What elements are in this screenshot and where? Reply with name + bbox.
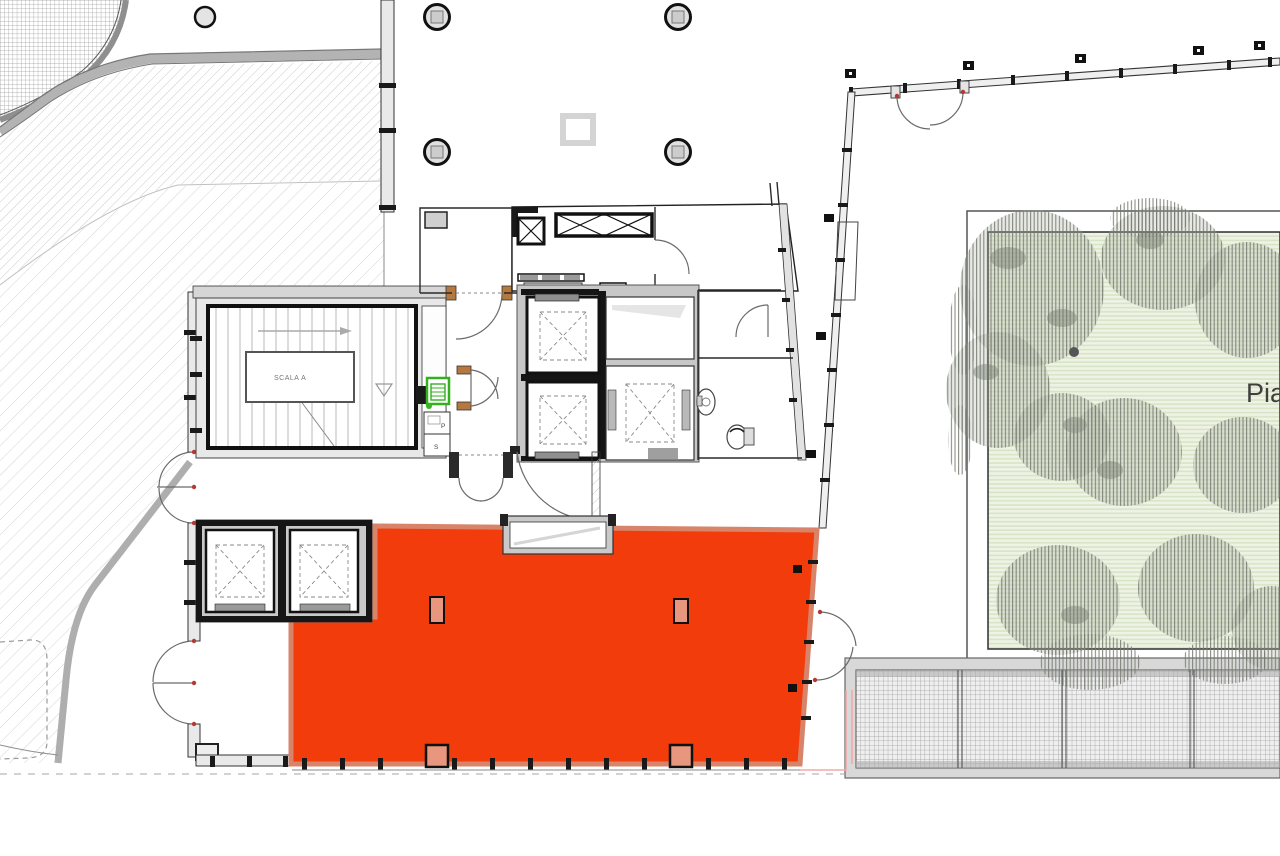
elevator-shaft (290, 530, 358, 612)
unit-column (674, 599, 688, 623)
south-wall-west-segment (196, 755, 292, 767)
svg-text:S: S (434, 444, 439, 451)
tree-canopy (1183, 636, 1267, 684)
north-wall (379, 0, 396, 212)
east-marker (793, 565, 802, 573)
elevator-shaft (527, 294, 599, 373)
tree-canopy (1110, 198, 1190, 238)
duct-box (518, 218, 544, 244)
column-marker (195, 7, 215, 27)
tree-canopy (949, 285, 977, 375)
east-marker (788, 684, 797, 692)
tree-canopy (1066, 398, 1182, 506)
elevator-shaft-large (606, 366, 694, 460)
pink-outline (800, 690, 852, 770)
unit-pier (670, 745, 692, 767)
unit-pier (426, 745, 448, 767)
elevator-shaft (206, 530, 274, 612)
east-wall-band (779, 204, 806, 460)
lower-elevator-block (196, 520, 372, 622)
room-p: P (424, 412, 450, 434)
stairwell: SCALA A (190, 286, 447, 458)
toilet (727, 425, 754, 449)
floor-plan-canvas: Pia (0, 0, 1280, 856)
column-marker (666, 140, 691, 165)
unit-column (430, 597, 444, 623)
tree-canopy (1040, 634, 1140, 690)
ghost-column (563, 116, 593, 143)
stairwell-label: SCALA A (274, 375, 306, 382)
column-marker (425, 140, 450, 165)
west-door-pair-lower (153, 639, 196, 726)
elevator-bank (517, 285, 699, 462)
tree-trunk-dot (1069, 347, 1079, 357)
machine-room (606, 297, 694, 359)
sink (697, 389, 715, 415)
tree-canopy (948, 405, 972, 475)
bathroom (697, 290, 802, 460)
fence-west-wall (819, 92, 855, 528)
plaza-label: Pia (1246, 378, 1280, 408)
vent-box (425, 212, 447, 228)
floor-plan-frame: Pia (0, 0, 1280, 856)
corridor-double-door (457, 366, 498, 410)
fence-markers (845, 41, 1265, 78)
electrical-panel (426, 378, 449, 409)
entry-window-box (500, 514, 616, 554)
elevator-shaft (527, 382, 599, 459)
hall-double-door (449, 452, 513, 501)
duct-box-long (556, 214, 652, 236)
column-marker (425, 5, 450, 30)
room-s: S (424, 434, 450, 456)
svg-text:P: P (441, 423, 445, 430)
column-marker (666, 5, 691, 30)
